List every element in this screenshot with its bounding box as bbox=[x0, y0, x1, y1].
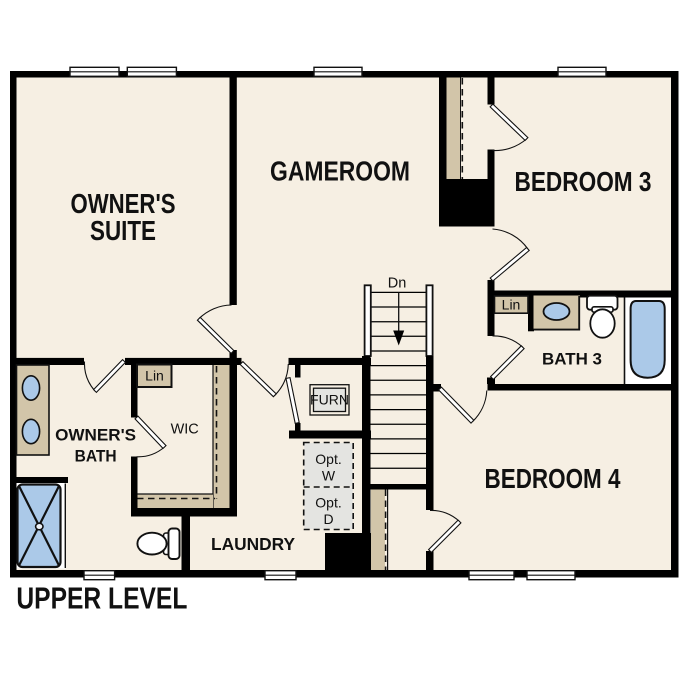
svg-text:BATH: BATH bbox=[75, 447, 117, 465]
svg-text:SUITE: SUITE bbox=[90, 215, 156, 246]
svg-text:Opt.: Opt. bbox=[315, 495, 341, 511]
svg-text:D: D bbox=[323, 511, 333, 527]
svg-text:WIC: WIC bbox=[171, 421, 199, 437]
svg-text:Dn: Dn bbox=[388, 276, 407, 292]
svg-text:BATH 3: BATH 3 bbox=[542, 351, 602, 369]
svg-text:BEDROOM 3: BEDROOM 3 bbox=[515, 166, 652, 197]
svg-text:LAUNDRY: LAUNDRY bbox=[211, 534, 295, 554]
svg-text:Opt.: Opt. bbox=[315, 451, 341, 467]
svg-text:Lin: Lin bbox=[502, 297, 521, 313]
svg-text:GAMEROOM: GAMEROOM bbox=[270, 155, 410, 186]
svg-text:Lin: Lin bbox=[145, 368, 164, 384]
svg-text:OWNER'S: OWNER'S bbox=[55, 427, 136, 445]
svg-text:W: W bbox=[322, 468, 336, 484]
svg-text:BEDROOM 4: BEDROOM 4 bbox=[485, 463, 621, 494]
svg-text:FURN: FURN bbox=[310, 392, 349, 408]
svg-text:UPPER LEVEL: UPPER LEVEL bbox=[16, 581, 187, 616]
